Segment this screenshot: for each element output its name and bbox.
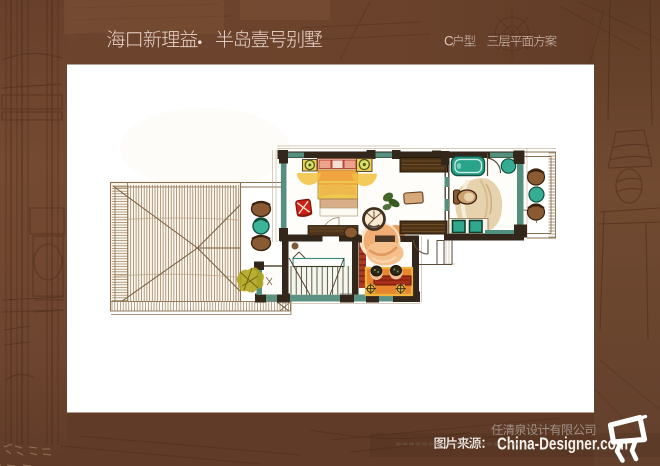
svg-text:C: C [444,33,454,48]
